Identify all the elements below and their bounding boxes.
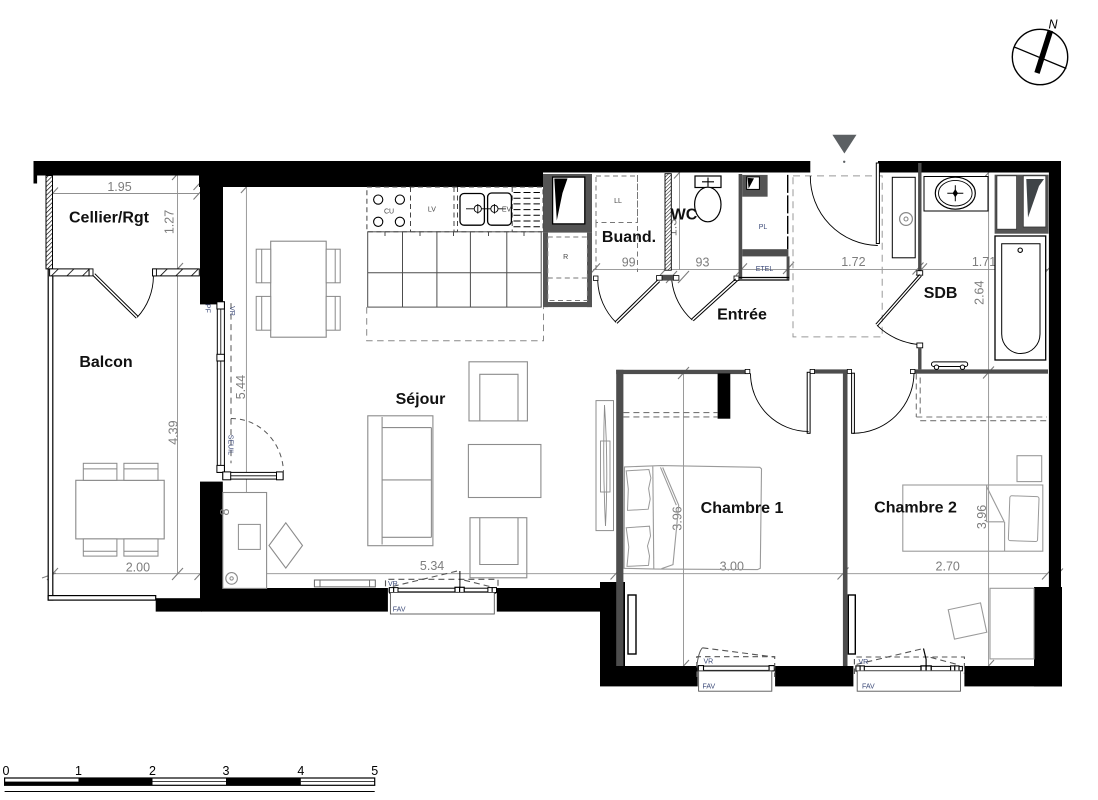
svg-text:1.71: 1.71 [972, 255, 996, 269]
svg-text:0: 0 [3, 764, 10, 778]
svg-text:Balcon: Balcon [79, 354, 132, 371]
svg-text:CU: CU [384, 209, 394, 216]
svg-text:SDB: SDB [924, 285, 958, 302]
svg-text:99: 99 [622, 256, 636, 270]
svg-text:93: 93 [696, 256, 710, 270]
svg-text:Chambre 2: Chambre 2 [874, 500, 957, 517]
svg-text:ETEL: ETEL [756, 266, 774, 273]
svg-text:2.70: 2.70 [936, 560, 960, 574]
svg-text:2.64: 2.64 [973, 280, 987, 304]
svg-text:1: 1 [75, 764, 82, 778]
svg-text:WC: WC [671, 207, 698, 224]
svg-text:PL: PL [759, 224, 768, 231]
svg-text:EV: EV [502, 207, 512, 214]
svg-text:2: 2 [149, 764, 156, 778]
svg-text:1.27: 1.27 [163, 210, 177, 234]
svg-text:FAV: FAV [703, 684, 716, 691]
svg-text:Buand.: Buand. [602, 229, 656, 246]
svg-text:Cellier/Rgt: Cellier/Rgt [69, 210, 150, 227]
svg-text:4.39: 4.39 [166, 420, 180, 444]
svg-text:3.00: 3.00 [720, 560, 744, 574]
svg-text:LL: LL [614, 198, 622, 205]
svg-text:5.44: 5.44 [234, 375, 248, 399]
svg-text:VR: VR [859, 659, 869, 666]
svg-text:3: 3 [223, 764, 230, 778]
svg-text:N: N [1049, 18, 1059, 32]
svg-text:2.00: 2.00 [126, 561, 150, 575]
svg-text:Séjour: Séjour [396, 391, 446, 408]
svg-text:VR: VR [704, 659, 714, 666]
svg-text:1.72: 1.72 [841, 255, 865, 269]
svg-text:1.95: 1.95 [107, 180, 131, 194]
svg-text:4: 4 [297, 764, 304, 778]
svg-text:R: R [563, 254, 568, 261]
svg-text:Entrée: Entrée [717, 307, 767, 324]
svg-text:PF: PF [203, 304, 210, 313]
svg-text:5: 5 [371, 764, 378, 778]
svg-text:FAV: FAV [393, 607, 406, 614]
svg-text:SEUIL: SEUIL [227, 435, 234, 455]
svg-text:VR: VR [228, 306, 235, 316]
svg-text:Chambre 1: Chambre 1 [701, 500, 784, 517]
svg-text:LV: LV [428, 207, 436, 214]
svg-text:VR: VR [388, 581, 398, 588]
svg-text:FAV: FAV [862, 684, 875, 691]
svg-text:5.34: 5.34 [420, 559, 444, 573]
svg-text:8: 8 [218, 508, 232, 515]
